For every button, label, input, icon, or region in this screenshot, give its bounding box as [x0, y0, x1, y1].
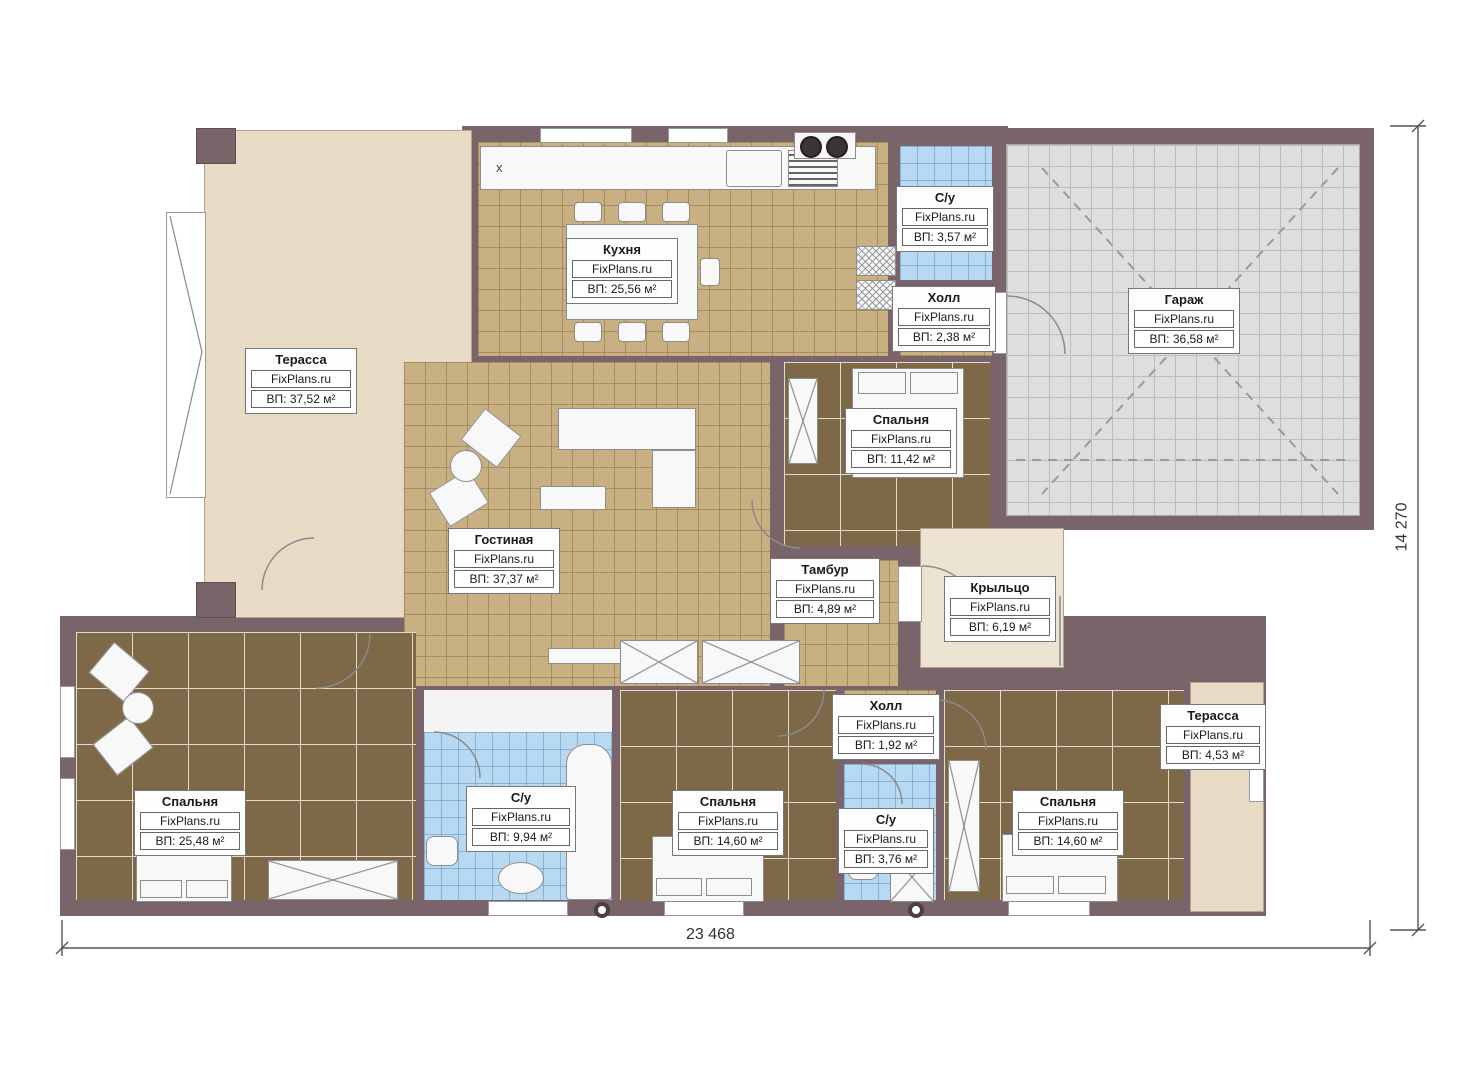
room-area: ВП: 14,60 м² — [1018, 832, 1118, 850]
brand-text: FixPlans.ru — [678, 812, 778, 830]
brand-text: FixPlans.ru — [776, 580, 874, 598]
room-label-garage: Гараж FixPlans.ru ВП: 36,58 м² — [1128, 288, 1240, 354]
brand-text: FixPlans.ru — [472, 808, 570, 826]
brand-text: FixPlans.ru — [838, 716, 934, 734]
room-area: ВП: 1,92 м² — [838, 736, 934, 754]
brand-text: FixPlans.ru — [844, 830, 928, 848]
room-label-porch: Крыльцо FixPlans.ru ВП: 6,19 м² — [944, 576, 1056, 642]
brand-text: FixPlans.ru — [851, 430, 951, 448]
floor-plan-canvas: x — [0, 0, 1474, 1080]
room-area: ВП: 25,48 м² — [140, 832, 240, 850]
room-area: ВП: 4,89 м² — [776, 600, 874, 618]
room-label-bedroom-2548: Спальня FixPlans.ru ВП: 25,48 м² — [134, 790, 246, 856]
brand-text: FixPlans.ru — [902, 208, 988, 226]
room-name: Гостиная — [451, 531, 557, 549]
room-name: Терасса — [248, 351, 354, 369]
room-name: Крыльцо — [947, 579, 1053, 597]
room-label-bath-top: С/у FixPlans.ru ВП: 3,57 м² — [896, 186, 994, 252]
room-label-bath-376: С/у FixPlans.ru ВП: 3,76 м² — [838, 808, 934, 874]
room-label-tambur: Тамбур FixPlans.ru ВП: 4,89 м² — [770, 558, 880, 624]
room-label-terrace-top: Терасса FixPlans.ru ВП: 37,52 м² — [245, 348, 357, 414]
room-area: ВП: 2,38 м² — [898, 328, 990, 346]
room-name: Гараж — [1131, 291, 1237, 309]
brand-text: FixPlans.ru — [251, 370, 351, 388]
room-name: Спальня — [848, 411, 954, 429]
room-area: ВП: 9,94 м² — [472, 828, 570, 846]
room-area: ВП: 25,56 м² — [572, 280, 672, 298]
room-area: ВП: 36,58 м² — [1134, 330, 1234, 348]
brand-text: FixPlans.ru — [454, 550, 554, 568]
room-name: Холл — [895, 289, 993, 307]
brand-text: FixPlans.ru — [1134, 310, 1234, 328]
room-name: Кухня — [569, 241, 675, 259]
room-label-kitchen: Кухня FixPlans.ru ВП: 25,56 м² — [566, 238, 678, 304]
room-name: С/у — [899, 189, 991, 207]
room-name: Спальня — [675, 793, 781, 811]
brand-text: FixPlans.ru — [572, 260, 672, 278]
brand-text: FixPlans.ru — [1166, 726, 1260, 744]
room-label-living: Гостиная FixPlans.ru ВП: 37,37 м² — [448, 528, 560, 594]
room-name: С/у — [841, 811, 931, 829]
dimension-height: 14 270 — [1393, 503, 1411, 552]
room-area: ВП: 11,42 м² — [851, 450, 951, 468]
room-name: Терасса — [1163, 707, 1263, 725]
brand-text: FixPlans.ru — [140, 812, 240, 830]
brand-text: FixPlans.ru — [950, 598, 1050, 616]
room-name: Тамбур — [773, 561, 877, 579]
room-label-hall-top: Холл FixPlans.ru ВП: 2,38 м² — [892, 286, 996, 352]
room-area: ВП: 4,53 м² — [1166, 746, 1260, 764]
room-label-bedroom-1460-mid: Спальня FixPlans.ru ВП: 14,60 м² — [672, 790, 784, 856]
room-area: ВП: 6,19 м² — [950, 618, 1050, 636]
room-area: ВП: 37,52 м² — [251, 390, 351, 408]
room-area: ВП: 37,37 м² — [454, 570, 554, 588]
room-label-hall-bottom: Холл FixPlans.ru ВП: 1,92 м² — [832, 694, 940, 760]
labels-layer: Терасса FixPlans.ru ВП: 37,52 м² Кухня F… — [0, 0, 1474, 1080]
dimension-width: 23 468 — [686, 926, 735, 944]
room-area: ВП: 3,57 м² — [902, 228, 988, 246]
room-label-bedroom-1142: Спальня FixPlans.ru ВП: 11,42 м² — [845, 408, 957, 474]
brand-text: FixPlans.ru — [898, 308, 990, 326]
room-name: Холл — [835, 697, 937, 715]
room-area: ВП: 14,60 м² — [678, 832, 778, 850]
room-area: ВП: 3,76 м² — [844, 850, 928, 868]
room-name: Спальня — [1015, 793, 1121, 811]
brand-text: FixPlans.ru — [1018, 812, 1118, 830]
room-label-terrace-bottom: Терасса FixPlans.ru ВП: 4,53 м² — [1160, 704, 1266, 770]
room-name: С/у — [469, 789, 573, 807]
room-name: Спальня — [137, 793, 243, 811]
room-label-bedroom-1460-right: Спальня FixPlans.ru ВП: 14,60 м² — [1012, 790, 1124, 856]
room-label-bath-994: С/у FixPlans.ru ВП: 9,94 м² — [466, 786, 576, 852]
